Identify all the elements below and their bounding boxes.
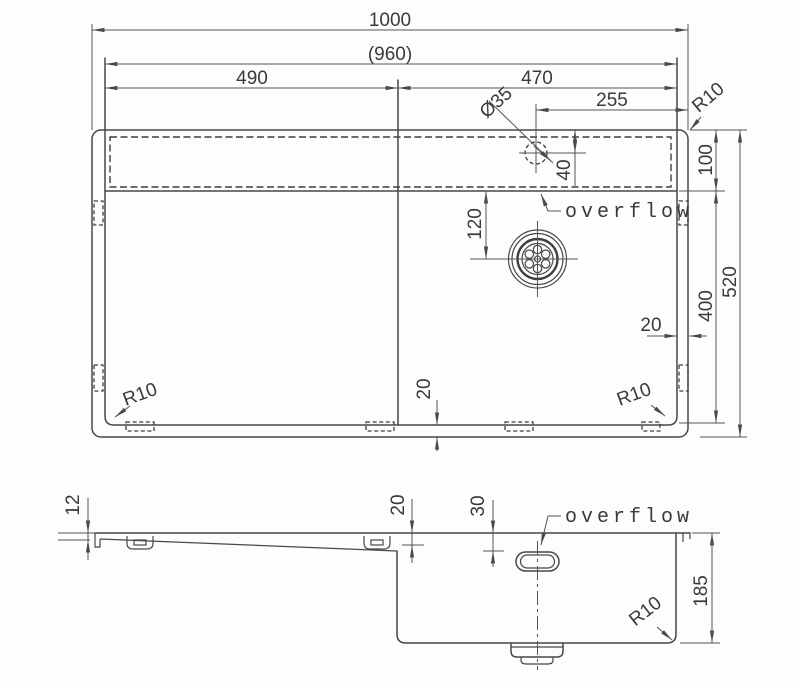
overflow-label-text: overflow [565, 506, 693, 529]
dim-text-overall-depth: 520 [720, 266, 741, 298]
dim-step-depth: 20 [388, 494, 424, 563]
dim-bowl-length: 400 [696, 191, 717, 423]
leader-arrow [541, 516, 561, 545]
dim-faucet-from-edge: 40 [554, 130, 575, 186]
leader-arrow [541, 194, 561, 211]
dim-text-faucet-from-edge: 40 [554, 159, 575, 180]
dim-text-inner-width: (960) [368, 44, 412, 65]
clip-bottom-1 [126, 422, 154, 431]
dim-text-deck-thickness: 12 [63, 494, 84, 515]
dim-overall-width: 1000 [92, 10, 688, 31]
dim-text-radius-bottom-right: R10 [614, 379, 654, 411]
dim-radius-bottom-right: R10 [614, 379, 665, 416]
dim-faucet-hole-diameter: Ø35 [476, 83, 553, 163]
dim-text-drain-offset: 120 [465, 208, 486, 240]
dim-drainboard-width: 490 [105, 68, 398, 89]
dim-bowl-depth: 185 [691, 533, 712, 643]
label-overflow-side-view: overflow [541, 506, 693, 545]
dim-text-radius-bottom-left: R10 [120, 379, 160, 411]
sink-outer-edge [92, 130, 688, 437]
dim-drain-offset: 120 [465, 191, 486, 259]
dim-text-step-depth: 20 [388, 494, 409, 515]
dim-overall-depth: 520 [720, 130, 741, 437]
sink-rim-inner-edge [105, 58, 677, 425]
clip-right-2 [679, 365, 688, 391]
dim-text-deck-depth: 100 [696, 144, 717, 176]
dim-text-radius-bottom-side: R10 [625, 593, 665, 631]
dim-radius-bottom-left: R10 [115, 379, 160, 417]
clip-bottom-2 [366, 422, 394, 431]
deck-recess-hidden-edge [110, 137, 671, 187]
dim-text-drainboard-width: 490 [236, 68, 268, 89]
dim-text-overall-width: 1000 [369, 10, 411, 31]
leader-arrow [690, 117, 701, 130]
front-lip [95, 533, 100, 547]
clip-profile-2 [364, 536, 390, 549]
clip-bottom-3 [505, 422, 533, 431]
dim-radius-bottom-side: R10 [625, 593, 672, 640]
dim-text-rim-right: 20 [640, 315, 661, 336]
dim-text-rim-bottom: 20 [414, 378, 435, 399]
label-overflow-top-view: overflow [541, 194, 693, 224]
dim-bowl-width: 470 [398, 68, 677, 89]
clip-left-1 [94, 201, 103, 225]
dim-deck-thickness: 12 [63, 494, 88, 560]
dim-text-bowl-depth: 185 [691, 575, 712, 607]
mounting-clips [94, 201, 688, 431]
clip-slot-2 [371, 540, 383, 545]
dim-text-bowl-width: 470 [521, 68, 553, 89]
dim-rim-bottom: 20 [414, 378, 437, 451]
leader-arrow [651, 405, 665, 416]
dim-text-faucet-offset: 255 [596, 90, 628, 111]
drain-hole [542, 260, 550, 268]
dim-overflow-offset: 30 [468, 495, 504, 567]
drain-hole [542, 250, 550, 258]
leader-arrow [657, 627, 672, 640]
clip-bottom-4 [642, 422, 660, 431]
extension-lines-side-view [58, 533, 720, 643]
drawing-canvas: 1000 (960) 490 470 255 Ø35 40 [0, 0, 800, 687]
dim-text-faucet-hole: Ø35 [476, 83, 517, 123]
technical-drawing-sink: 1000 (960) 490 470 255 Ø35 40 [0, 0, 800, 687]
clip-profile-1 [127, 536, 153, 549]
dim-deck-depth: 100 [696, 130, 717, 191]
overflow-label-text: overflow [565, 201, 693, 224]
dim-text-bowl-length: 400 [696, 290, 717, 322]
dim-faucet-offset: 255 [536, 90, 688, 111]
dim-radius-top-right: R10 [688, 79, 728, 130]
dim-inner-width: (960) [105, 44, 677, 65]
dim-text-overflow-offset: 30 [468, 495, 489, 516]
dim-text-radius-top-right: R10 [688, 79, 728, 117]
top-view: 1000 (960) 490 470 255 Ø35 40 [92, 10, 747, 451]
drain-hole [525, 250, 533, 258]
clip-left-2 [94, 365, 103, 391]
drain-hole [525, 260, 533, 268]
side-view: 12 20 30 185 R10 overflow [58, 494, 720, 670]
extension-lines-top-view [92, 24, 747, 437]
